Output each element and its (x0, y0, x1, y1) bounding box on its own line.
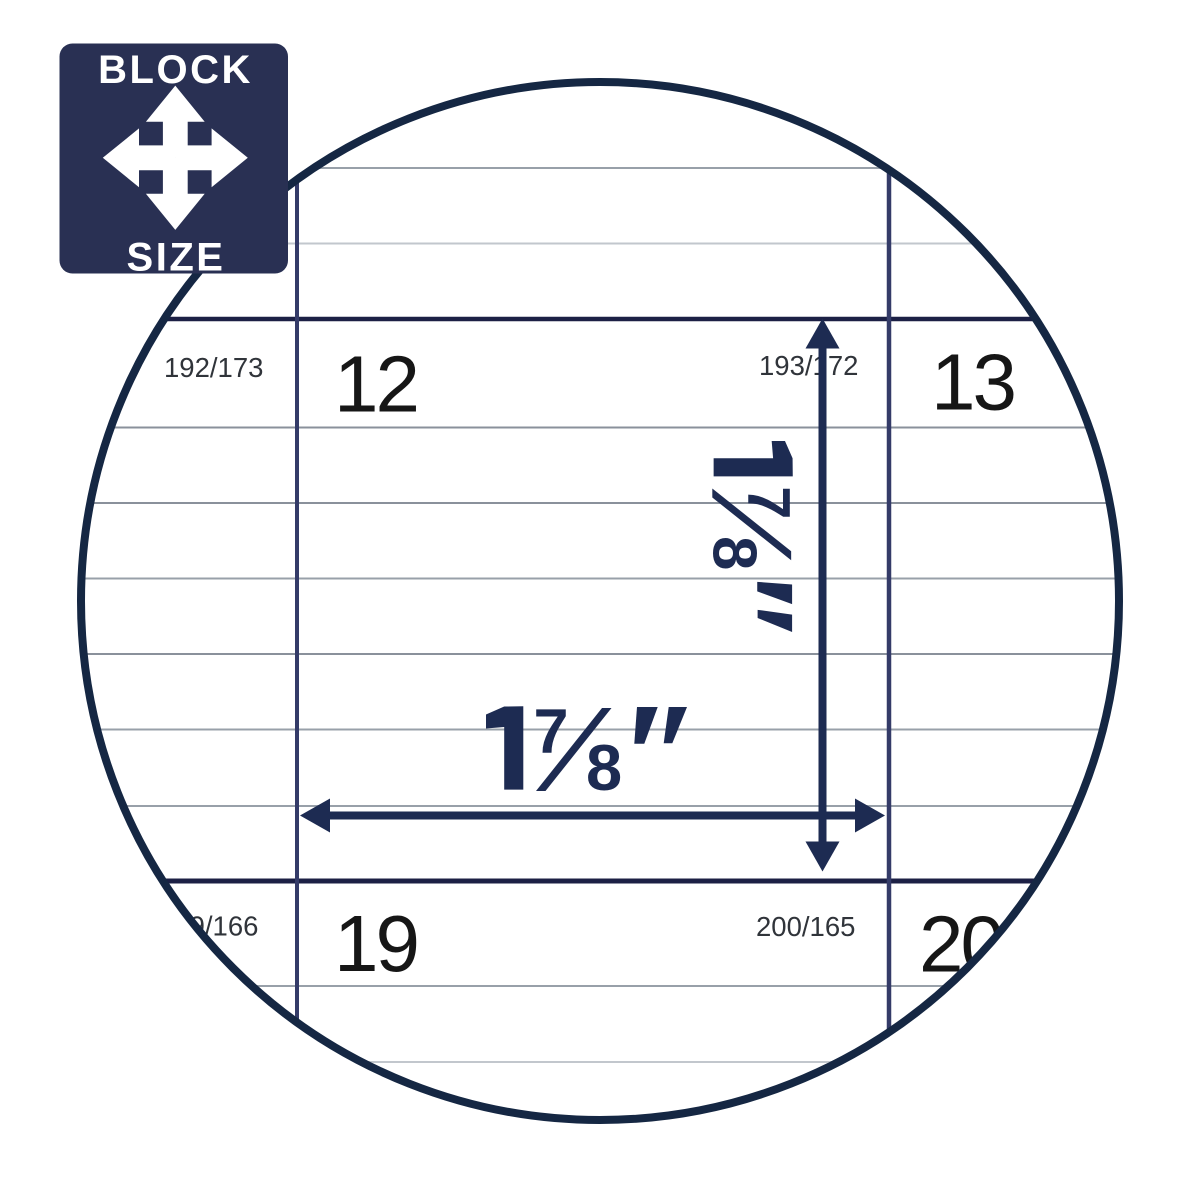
svg-text:200/165: 200/165 (756, 911, 855, 942)
svg-text:SIZE: SIZE (127, 236, 226, 280)
svg-text:8: 8 (586, 731, 622, 804)
svg-text:12: 12 (334, 340, 417, 429)
svg-text:7: 7 (735, 486, 802, 519)
svg-text:13: 13 (931, 338, 1014, 427)
svg-text:19: 19 (334, 899, 417, 988)
svg-text:193/172: 193/172 (759, 350, 858, 381)
svg-text:7: 7 (534, 697, 569, 767)
svg-text:BLOCK: BLOCK (98, 48, 253, 92)
svg-text:192/173: 192/173 (164, 352, 263, 383)
svg-text:8: 8 (699, 536, 768, 570)
